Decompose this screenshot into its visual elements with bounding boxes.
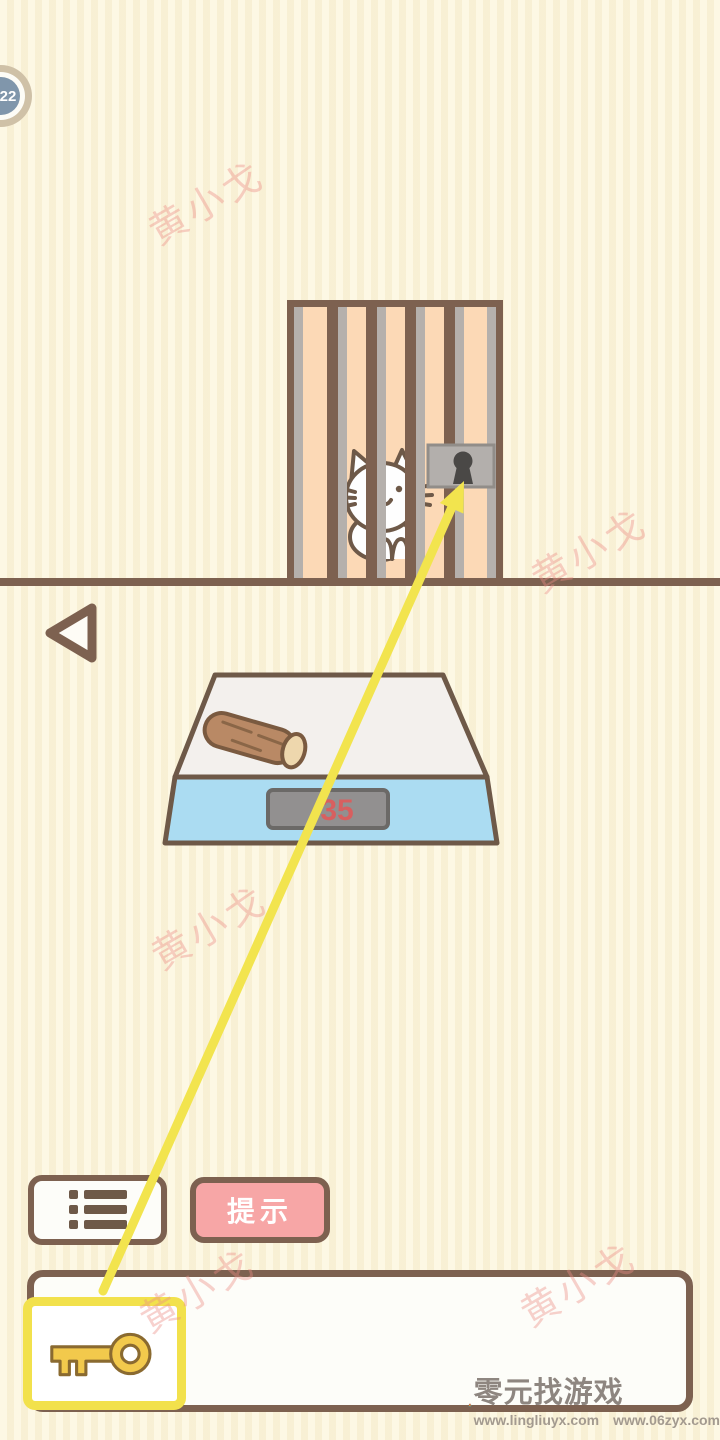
cat-cage[interactable] — [287, 300, 503, 585]
scale-display-value: 35 — [320, 794, 353, 827]
level-badge-ring: 22 — [0, 72, 25, 120]
site-watermark: 零元找游戏 www.lingliuyx.com www.06zyx.com — [468, 1376, 720, 1434]
level-badge[interactable]: 22 — [0, 65, 32, 127]
watermark-text: 黄小戈 — [520, 493, 657, 604]
hint-button-label: 提示 — [227, 1190, 293, 1230]
back-button[interactable] — [38, 598, 102, 668]
watermark-text: 黄小戈 — [140, 870, 277, 981]
list-icon — [69, 1188, 127, 1232]
cat-eye — [396, 486, 402, 492]
inventory-slot-key[interactable] — [23, 1297, 186, 1410]
back-triangle-icon — [50, 608, 92, 658]
weighing-scale[interactable]: 35 — [155, 665, 505, 855]
hint-button[interactable]: 提示 — [190, 1177, 330, 1243]
site-url: www.lingliuyx.com — [474, 1412, 600, 1428]
level-number: 22 — [0, 88, 16, 105]
flame-logo-icon — [468, 1376, 472, 1434]
scale-display: 35 — [268, 790, 388, 828]
key-icon — [47, 1323, 162, 1385]
site-url: www.06zyx.com — [613, 1412, 720, 1428]
site-name: 零元找游戏 — [474, 1376, 720, 1410]
inventory-list-button[interactable] — [28, 1175, 167, 1245]
watermark-text: 黄小戈 — [137, 145, 274, 256]
cage-lock[interactable] — [428, 445, 494, 487]
